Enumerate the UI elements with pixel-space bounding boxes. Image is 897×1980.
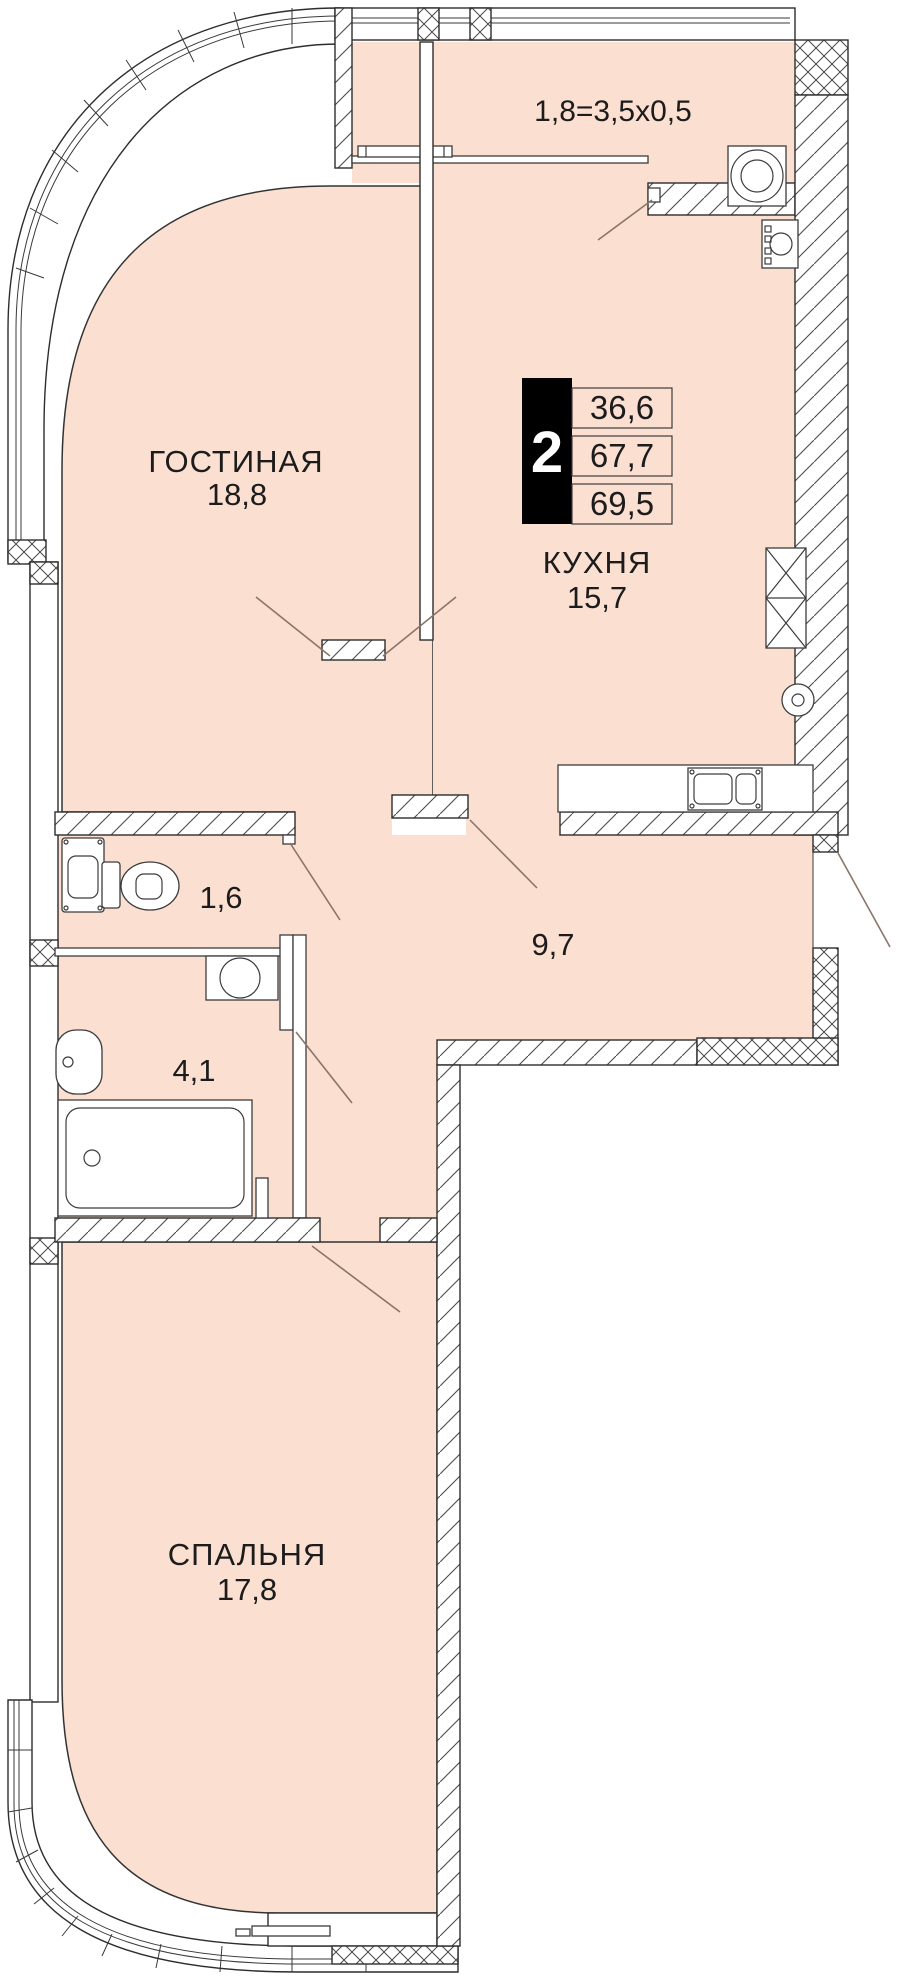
stove	[766, 548, 806, 648]
wall-wc-top	[55, 812, 295, 835]
floor-plan-svg: 2 36,6 67,7 69,5 1,8=3,5х0,5 ГОСТИНАЯ 18…	[0, 0, 897, 1980]
bath-door-jamb	[280, 935, 293, 1030]
entrance-jamb-top	[813, 835, 838, 852]
washing-machine	[62, 838, 104, 912]
entrance	[813, 835, 890, 1065]
wall-kitchen-bottom	[560, 812, 838, 835]
wc-area: 1,6	[199, 880, 242, 915]
bathtub	[58, 1100, 252, 1216]
badge-area-2: 67,7	[590, 437, 654, 474]
wall-bottom-xhatch	[332, 1946, 458, 1964]
wall-left-exterior	[30, 562, 58, 1702]
info-badge: 2 36,6 67,7 69,5	[522, 378, 672, 524]
living-room-area: 18,8	[207, 477, 267, 512]
hallway-area: 9,7	[531, 927, 574, 962]
badge-rooms-count: 2	[531, 420, 563, 485]
wall-wc-bath	[55, 948, 293, 956]
doorway-living-hall	[295, 808, 392, 838]
radiator	[358, 146, 452, 157]
kitchen-counter	[558, 765, 813, 812]
bedroom-label: СПАЛЬНЯ	[168, 1537, 327, 1572]
bathroom-area: 4,1	[172, 1053, 215, 1088]
washbasin	[206, 956, 278, 1000]
kitchen-area: 15,7	[567, 580, 627, 615]
kitchen-round-sink	[782, 684, 814, 716]
kitchen-label: КУХНЯ	[543, 545, 652, 580]
apartment-interior	[55, 42, 813, 1913]
floor-plan-page: 2 36,6 67,7 69,5 1,8=3,5х0,5 ГОСТИНАЯ 18…	[0, 0, 897, 1980]
loggia-dimension-label: 1,8=3,5х0,5	[534, 95, 692, 128]
wall-sink	[56, 1030, 102, 1094]
doorway-kitchen-hall	[466, 808, 562, 838]
walls-hallway-bottom	[437, 1038, 838, 1946]
bedroom-area: 17,8	[217, 1572, 277, 1607]
living-room-label: ГОСТИНАЯ	[148, 444, 323, 479]
entrance-door-swing	[838, 853, 890, 947]
toilet	[102, 862, 179, 910]
wall-loggia-left	[335, 8, 352, 168]
wall-door-stub	[322, 640, 385, 660]
wall-stub-hall	[392, 795, 468, 818]
wall-bedroom-right	[437, 1065, 460, 1946]
wall-balcony-end	[8, 540, 46, 564]
doorway-bedroom	[320, 1216, 380, 1244]
wall-bath-hall	[293, 935, 306, 1218]
wall-bedroom-top-stub	[380, 1218, 437, 1242]
badge-area-3: 69,5	[590, 485, 654, 522]
loggia-door-jamb	[648, 188, 660, 202]
badge-area-1: 36,6	[590, 389, 654, 426]
window-bedroom-bottom	[252, 1926, 330, 1936]
wall-bath-bottom	[55, 1218, 320, 1242]
vent-fan	[728, 146, 786, 206]
